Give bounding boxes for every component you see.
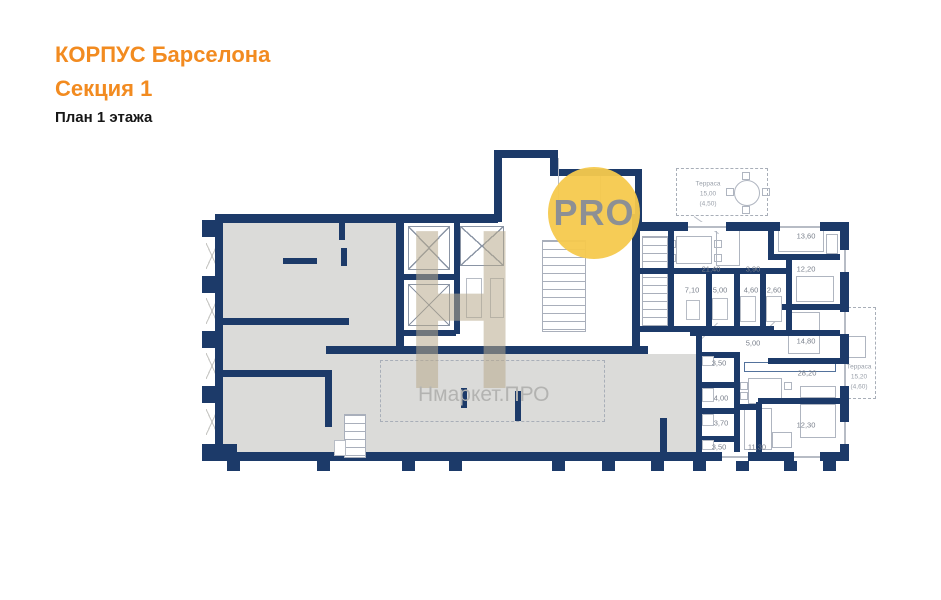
window-line <box>794 456 820 458</box>
watermark-logo-circle: PRO <box>548 167 640 259</box>
room-area-label: 13,60 <box>797 232 816 241</box>
window-line <box>780 226 820 228</box>
chair <box>742 172 750 180</box>
wall <box>341 248 347 266</box>
room-area-label: 14,80 <box>797 337 816 346</box>
wall <box>202 331 216 348</box>
terrace-area: 15,20 <box>847 372 872 382</box>
wall <box>227 460 240 471</box>
room-area-label: 11,30 <box>748 443 766 452</box>
wall <box>222 370 332 377</box>
wall <box>552 460 565 471</box>
wall <box>317 460 330 471</box>
window-line <box>844 422 846 444</box>
wall <box>202 220 216 237</box>
terrace-label-top: Терраса 15,00 (4,50) <box>696 179 721 208</box>
window-line <box>722 456 748 458</box>
wall <box>215 452 848 461</box>
room-area-label: 21,40 <box>702 265 721 274</box>
room-area-label: 3,70 <box>714 419 729 428</box>
furniture <box>826 234 838 254</box>
furniture <box>848 336 866 358</box>
wall <box>758 398 844 404</box>
wall <box>396 214 404 354</box>
room-area-label: 4,00 <box>714 394 729 403</box>
terrace-name: Терраса <box>847 362 872 372</box>
wall <box>402 460 415 471</box>
terrace-area: 15,00 <box>696 189 721 199</box>
wall <box>651 460 664 471</box>
furniture <box>796 276 834 302</box>
window-line <box>844 312 846 334</box>
room-area-label: 12,30 <box>797 421 816 430</box>
room-area-label: 7,10 <box>685 286 700 295</box>
wall <box>202 386 216 403</box>
furniture <box>772 432 792 448</box>
wall <box>784 460 797 471</box>
room-area-label: 28,20 <box>798 369 817 378</box>
room-area-label: 5,00 <box>746 339 761 348</box>
chair <box>762 188 770 196</box>
terrace-reduced-area: (4,60) <box>847 382 872 392</box>
wall <box>736 460 749 471</box>
wall <box>823 460 836 471</box>
wall <box>660 418 667 454</box>
wall <box>602 460 615 471</box>
fixture <box>702 388 714 402</box>
chair <box>740 392 748 400</box>
fixture <box>702 414 714 426</box>
fixture <box>766 296 782 322</box>
wall <box>786 258 792 330</box>
wall <box>222 318 349 325</box>
wall <box>494 150 558 158</box>
window-line <box>844 250 846 272</box>
furniture <box>676 236 712 264</box>
watermark-brand-text: Нмаркет.ПРО <box>418 383 549 407</box>
terrace-reduced-area: (4,50) <box>696 199 721 209</box>
chair <box>740 382 748 390</box>
fixture <box>334 440 346 456</box>
wall <box>768 358 844 364</box>
watermark-pro-text: PRO <box>553 192 634 234</box>
floor-plan: 21,403,9013,6012,207,105,004,602,605,001… <box>0 0 941 600</box>
chair <box>742 206 750 214</box>
furniture <box>800 386 836 398</box>
room-area-label: 3,90 <box>746 265 761 274</box>
room-area-label: 12,20 <box>797 265 816 274</box>
room-area-label: 2,60 <box>767 286 782 295</box>
room-area-label: 4,60 <box>744 286 759 295</box>
wall <box>693 460 706 471</box>
fixture <box>712 298 728 320</box>
wall <box>325 370 332 427</box>
wall <box>690 330 842 336</box>
wall <box>339 222 345 240</box>
wall <box>668 222 674 332</box>
terrace-label-right: Терраса 15,20 (4,60) <box>847 362 872 391</box>
window-line <box>688 226 726 228</box>
staircase <box>344 414 366 458</box>
wall <box>215 214 223 461</box>
fixture <box>686 300 700 320</box>
wall <box>449 460 462 471</box>
wall <box>734 404 762 410</box>
wall <box>283 258 317 264</box>
terrace-name: Терраса <box>696 179 721 189</box>
fixture <box>740 296 756 322</box>
furniture <box>734 180 760 206</box>
room-area-label: 3,50 <box>712 443 727 452</box>
chair <box>726 188 734 196</box>
wall <box>202 276 216 293</box>
room-area-label: 5,00 <box>713 286 728 295</box>
furniture <box>716 228 740 266</box>
staircase <box>642 236 668 326</box>
chair <box>784 382 792 390</box>
wall <box>202 444 216 461</box>
wall <box>768 254 844 260</box>
room-area-label: 3,50 <box>712 359 727 368</box>
wall <box>215 214 407 223</box>
